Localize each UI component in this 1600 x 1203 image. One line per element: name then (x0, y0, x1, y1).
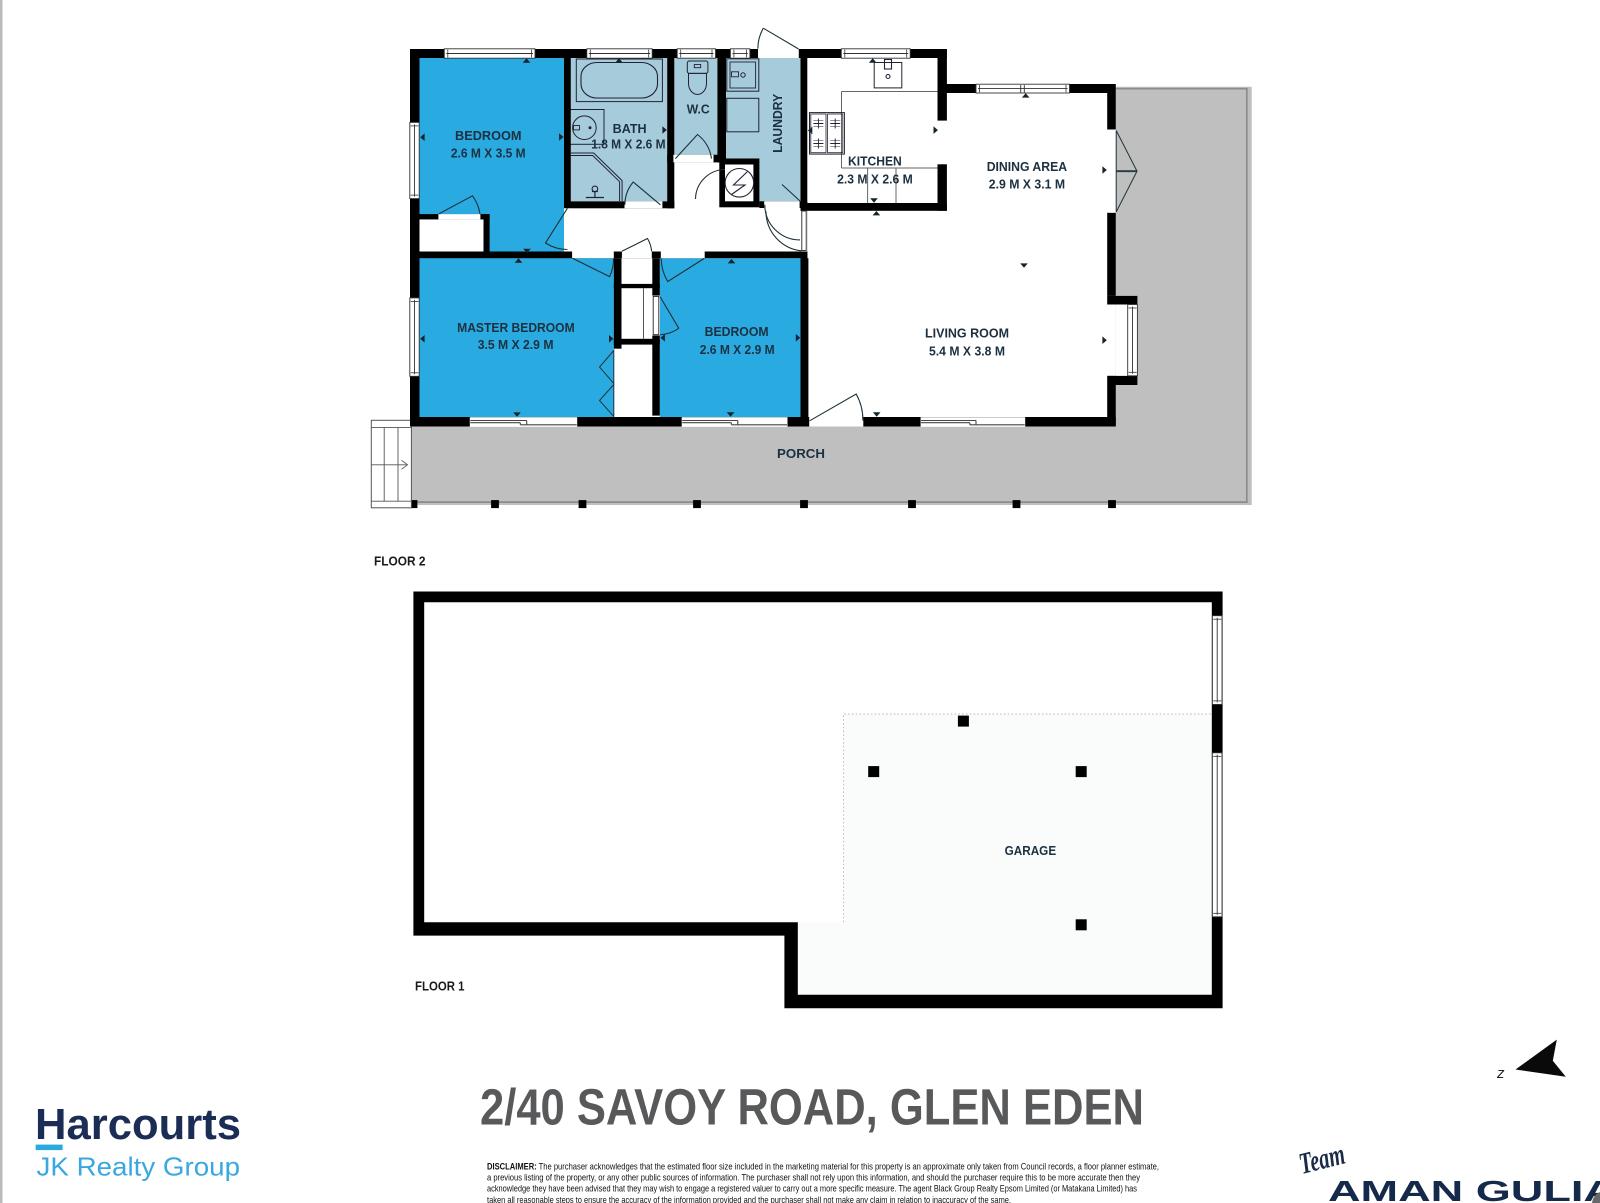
svg-text:2.9 M X 3.1 M: 2.9 M X 3.1 M (989, 177, 1065, 192)
svg-text:BEDROOM: BEDROOM (705, 324, 769, 339)
svg-text:LIVING ROOM: LIVING ROOM (925, 326, 1009, 341)
svg-text:2.6 M X 2.9 M: 2.6 M X 2.9 M (700, 342, 775, 357)
svg-text:KITCHEN: KITCHEN (848, 154, 902, 169)
svg-text:BEDROOM: BEDROOM (455, 128, 522, 143)
svg-text:PORCH: PORCH (777, 446, 825, 461)
svg-text:GARAGE: GARAGE (1005, 843, 1057, 858)
svg-text:DISCLAIMER: The purchaser ackn: DISCLAIMER: The purchaser acknowledges t… (487, 1161, 1159, 1171)
svg-text:2/40 SAVOY ROAD, GLEN EDEN: 2/40 SAVOY ROAD, GLEN EDEN (480, 1079, 1144, 1136)
svg-text:z: z (1496, 1065, 1505, 1082)
svg-text:FLOOR 1: FLOOR 1 (415, 979, 465, 993)
svg-text:AMAN GULIA: AMAN GULIA (1328, 1176, 1600, 1203)
svg-text:3.5 M X 2.9 M: 3.5 M X 2.9 M (478, 337, 554, 352)
svg-text:1.8 M X 2.6 M: 1.8 M X 2.6 M (591, 137, 665, 152)
svg-text:acknowledge they have been adv: acknowledge they have been advised that … (487, 1184, 1137, 1194)
svg-text:BATH: BATH (613, 121, 647, 136)
svg-text:MASTER BEDROOM: MASTER BEDROOM (457, 320, 575, 335)
svg-text:a previous listing of the prop: a previous listing of the property, or a… (487, 1173, 1140, 1183)
svg-text:FLOOR 2: FLOOR 2 (374, 555, 426, 569)
svg-text:JK Realty Group: JK Realty Group (37, 1152, 240, 1182)
svg-text:taken all reasonable steps to: taken all reasonable steps to ensure the… (487, 1195, 1011, 1203)
svg-text:2.6 M X 3.5 M: 2.6 M X 3.5 M (451, 146, 526, 161)
svg-text:2.3 M X 2.6 M: 2.3 M X 2.6 M (837, 172, 913, 187)
svg-text:5.4 M X 3.8 M: 5.4 M X 3.8 M (929, 344, 1005, 359)
svg-text:Harcourts: Harcourts (35, 1100, 241, 1149)
svg-text:DINING AREA: DINING AREA (987, 159, 1068, 174)
svg-text:LAUNDRY: LAUNDRY (770, 93, 785, 152)
svg-text:W.C: W.C (687, 102, 711, 117)
